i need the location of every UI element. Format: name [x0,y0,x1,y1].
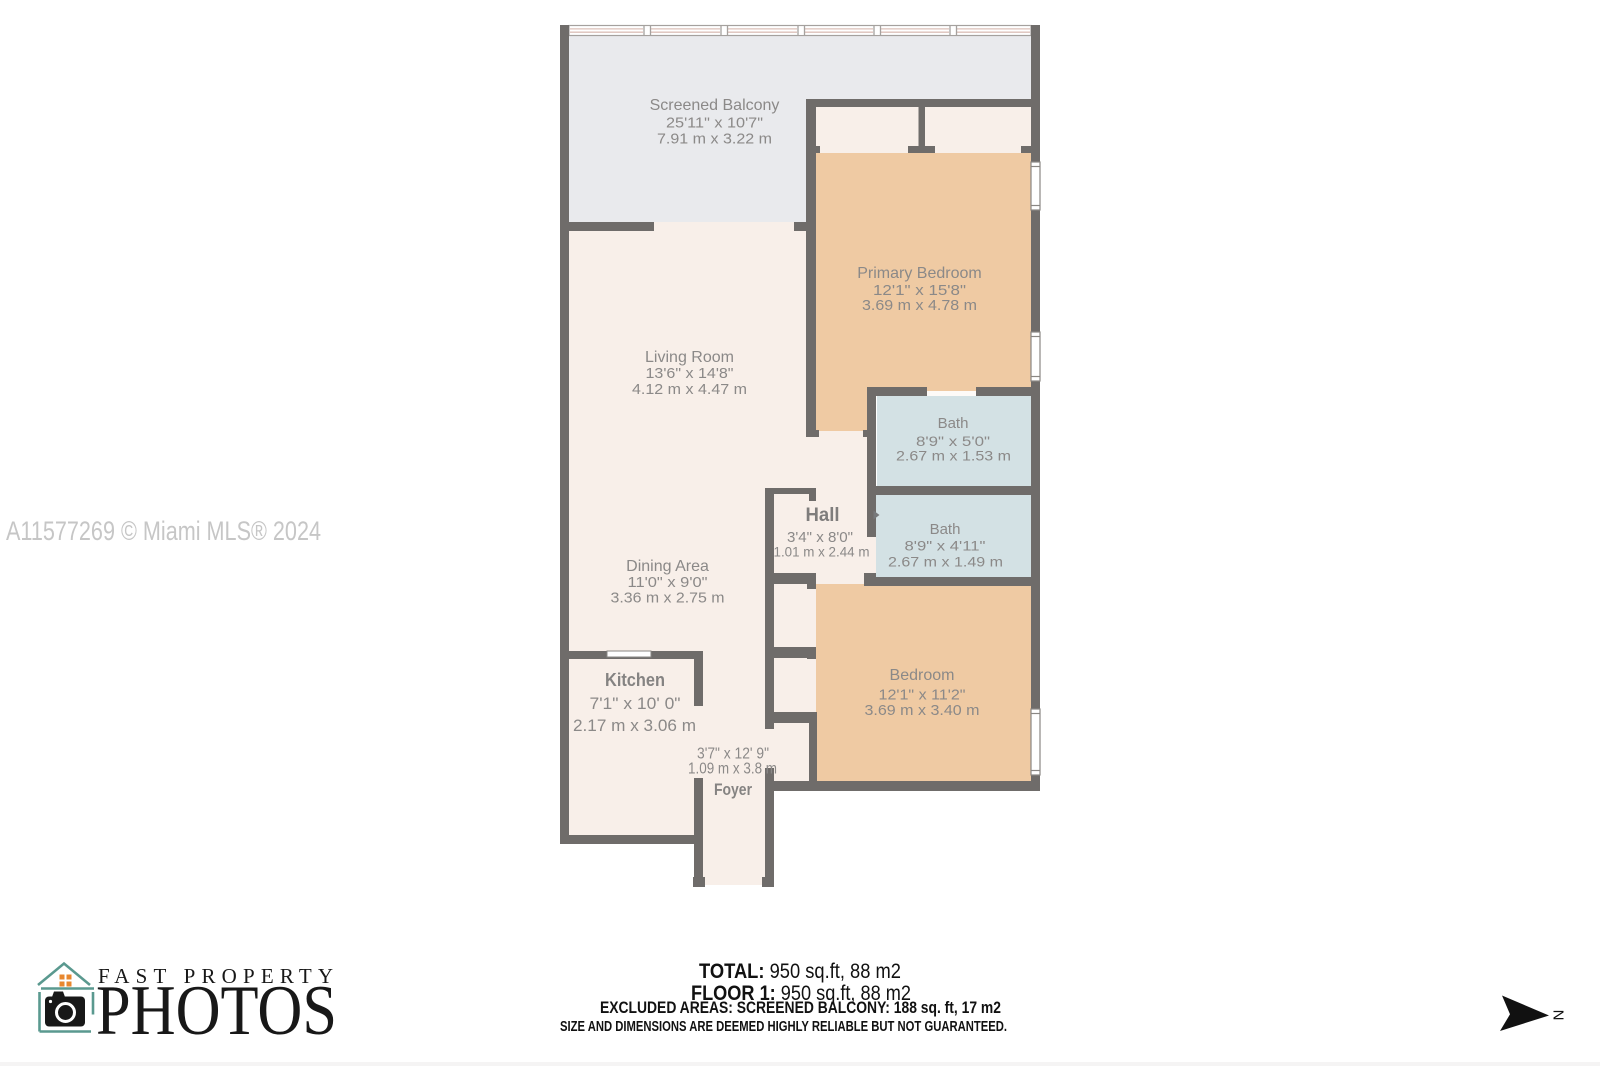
svg-text:13'6" x 14'8": 13'6" x 14'8" [646,365,734,382]
svg-text:Hall: Hall [806,504,840,526]
svg-text:1.09 m x 3.8 m: 1.09 m x 3.8 m [688,761,777,778]
svg-text:25'11" x 10'7": 25'11" x 10'7" [666,115,763,132]
svg-text:2.67 m x 1.49 m: 2.67 m x 1.49 m [888,554,1003,570]
svg-text:11'0" x 9'0": 11'0" x 9'0" [628,574,708,591]
svg-text:Primary Bedroom: Primary Bedroom [857,265,981,282]
svg-text:2.17 m x 3.06 m: 2.17 m x 3.06 m [573,717,696,735]
svg-text:Dining Area: Dining Area [626,558,709,575]
svg-text:8'9" x 4'11": 8'9" x 4'11" [905,538,986,554]
svg-text:N: N [1550,1010,1567,1021]
svg-text:PHOTOS: PHOTOS [96,972,337,1050]
svg-text:EXCLUDED AREAS: SCREENED BALCO: EXCLUDED AREAS: SCREENED BALCONY: 188 sq… [600,999,1001,1017]
svg-text:3.69 m x 4.78 m: 3.69 m x 4.78 m [862,297,977,314]
svg-text:Kitchen: Kitchen [605,669,665,690]
svg-text:3.36 m x 2.75 m: 3.36 m x 2.75 m [611,590,725,607]
svg-text:Bedroom: Bedroom [890,667,955,684]
svg-text:Bath: Bath [938,415,969,432]
svg-text:TOTAL: 950 sq.ft, 88 m2: TOTAL: 950 sq.ft, 88 m2 [699,960,901,983]
svg-text:Foyer: Foyer [714,781,752,799]
svg-text:3.69 m x 3.40 m: 3.69 m x 3.40 m [865,702,980,719]
svg-text:4.12 m x 4.47 m: 4.12 m x 4.47 m [632,381,747,398]
svg-text:2.67 m x 1.53 m: 2.67 m x 1.53 m [896,448,1011,464]
svg-text:12'1" x 11'2": 12'1" x 11'2" [879,687,966,704]
svg-text:SIZE AND DIMENSIONS ARE DEEMED: SIZE AND DIMENSIONS ARE DEEMED HIGHLY RE… [560,1019,1007,1035]
svg-text:Bath: Bath [930,521,961,538]
svg-text:Screened Balcony: Screened Balcony [650,97,780,114]
svg-text:7'1" x 10' 0": 7'1" x 10' 0" [590,694,681,713]
svg-text:7.91 m x 3.22 m: 7.91 m x 3.22 m [657,131,772,148]
svg-text:Living Room: Living Room [645,349,734,366]
svg-text:1.01 m x 2.44 m: 1.01 m x 2.44 m [774,544,870,560]
svg-text:A11577269 © Miami MLS® 2024: A11577269 © Miami MLS® 2024 [6,516,321,546]
